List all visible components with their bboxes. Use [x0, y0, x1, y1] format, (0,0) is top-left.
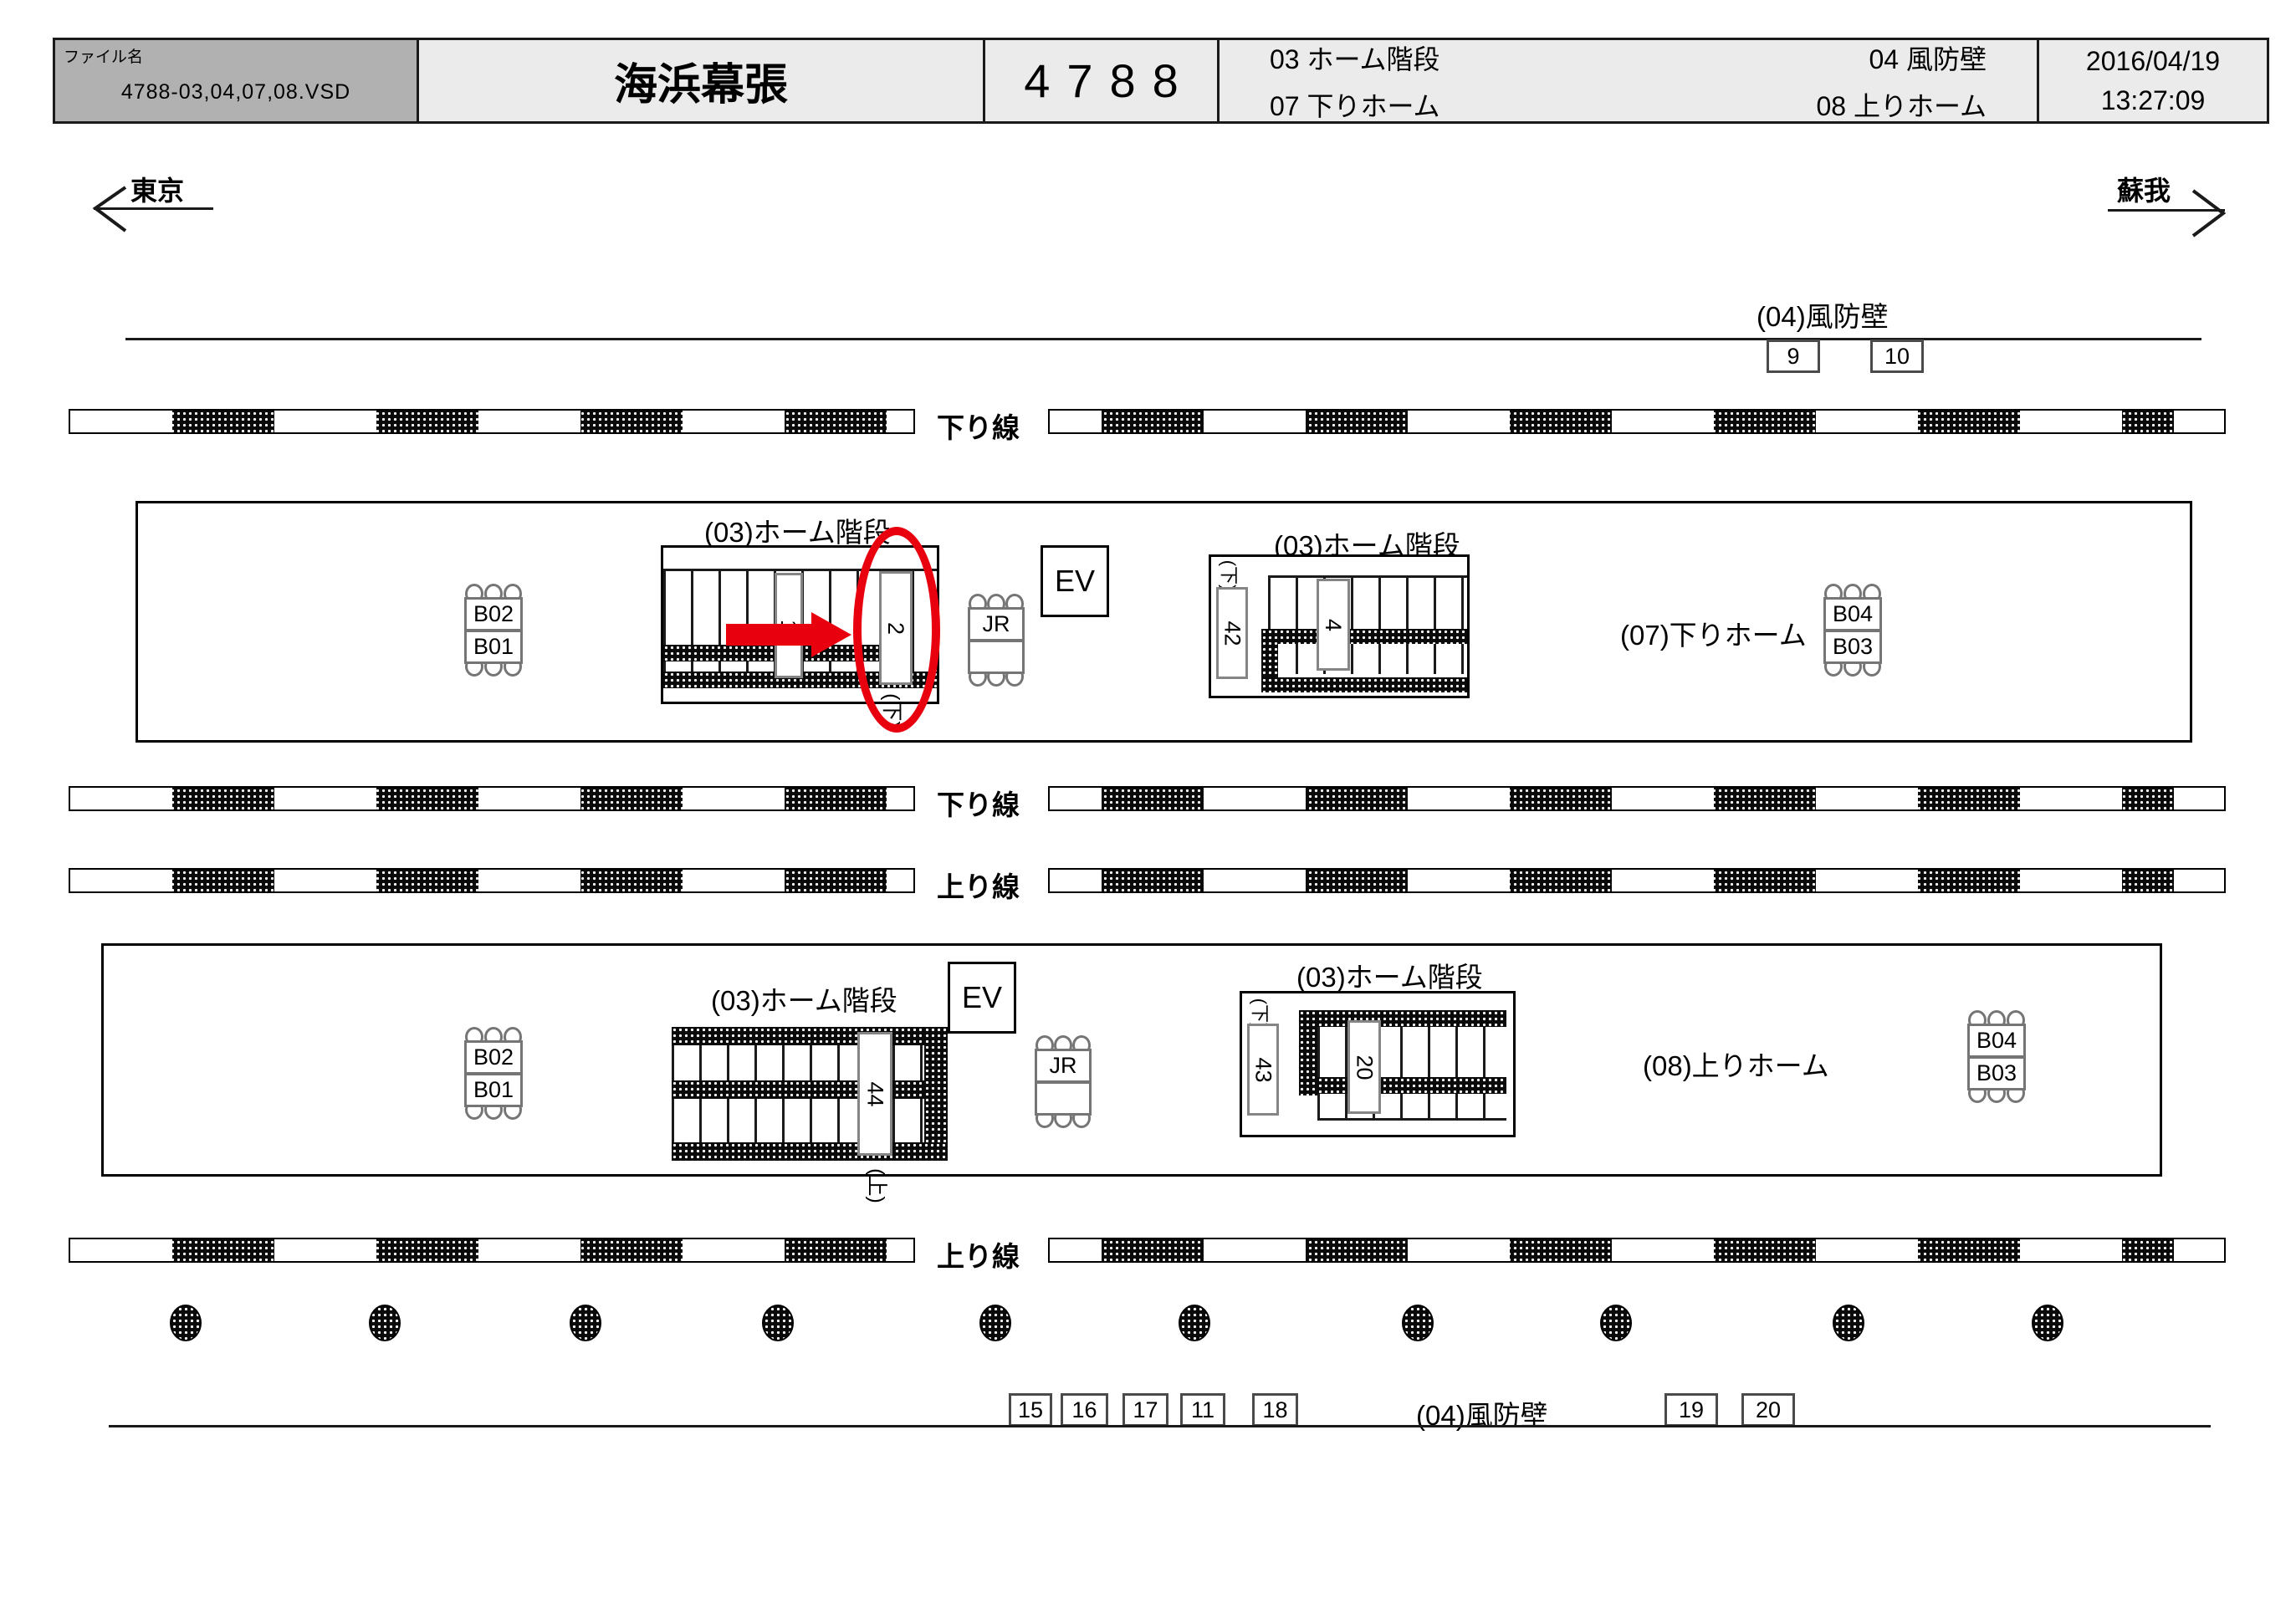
bench-upper-right: B04 B03: [1823, 584, 1882, 677]
pillar: [1833, 1305, 1864, 1341]
stairs3-label: (03)ホーム階段: [711, 978, 897, 1019]
jr-sign-lower: JR: [1035, 1035, 1092, 1129]
bench-lower-left: B02 B01: [464, 1027, 523, 1121]
direction-right-label: 蘇我: [2117, 170, 2171, 208]
stairs3-tread-strip: [672, 1142, 948, 1161]
stairs2-structure: (下) 42 4: [1209, 554, 1470, 698]
upper-platform-label: (07)下りホーム: [1620, 613, 1807, 653]
category-04: 04 風防壁: [1869, 38, 1987, 77]
drawing-number: 4788: [1024, 54, 1195, 108]
bench-label-b04: B04: [1970, 1026, 2023, 1055]
category-07: 07 下りホーム: [1270, 85, 1440, 124]
pillar: [1600, 1305, 1632, 1341]
track-bar: [1048, 1238, 2226, 1263]
pillar: [570, 1305, 601, 1341]
stairs3-structure: 44: [672, 1027, 948, 1161]
file-name-cell: ファイル名 4788-03,04,07,08.VSD: [55, 40, 419, 121]
windbreak-box-18: 18: [1252, 1393, 1298, 1427]
windbreak-box-19: 19: [1664, 1393, 1718, 1427]
red-highlight-ellipse: [853, 527, 940, 733]
stairs2-inner: 4: [1261, 575, 1467, 694]
bench-label-b03: B03: [1970, 1055, 2023, 1088]
windbreak-box-11: 11: [1180, 1393, 1225, 1427]
windbreak-bottom-line: [109, 1425, 2211, 1427]
stairs1-label: (03)ホーム階段: [704, 510, 891, 550]
track-bar: [69, 868, 915, 893]
stairs4-tread-strip: [1317, 1010, 1506, 1027]
windbreak-box-10: 10: [1870, 340, 1924, 373]
jr-sign-upper: JR: [968, 594, 1025, 687]
direction-left-arrow-icon: [84, 182, 134, 236]
pillar: [369, 1305, 401, 1341]
sign-44: 44: [857, 1032, 892, 1156]
jr-label: JR: [970, 610, 1022, 639]
datetime-cell: 2016/04/19 13:27:09: [2039, 40, 2267, 121]
track-bar: [1048, 409, 2226, 434]
sign-4: 4: [1317, 579, 1350, 671]
time-value: 13:27:09: [2101, 85, 2206, 116]
sign-43: 43: [1247, 1024, 1279, 1116]
jr-empty-cell: [970, 639, 1022, 672]
bench-upper-left: B02 B01: [464, 584, 523, 677]
direction-left-label: 東京: [130, 170, 184, 208]
windbreak-box-16: 16: [1061, 1393, 1108, 1427]
stairs3-tread-strip: [924, 1027, 948, 1161]
direction-right-arrow-icon: [2185, 186, 2235, 239]
stairs2-tread-strip: [1261, 677, 1467, 692]
track-bar: [69, 409, 915, 434]
file-name-label: ファイル名: [64, 44, 143, 67]
track-label-row4: 上り線: [937, 1234, 1020, 1274]
stairs2-tread-strip: [1261, 629, 1467, 644]
stairs4-inner: 20: [1299, 1010, 1506, 1121]
category-03: 03 ホーム階段: [1270, 38, 1440, 77]
track-bar: [1048, 786, 2226, 811]
track-bar: [69, 1238, 915, 1263]
lower-platform-label: (08)上りホーム: [1643, 1044, 1829, 1084]
red-arrow-shaft: [726, 624, 813, 646]
track-bar: [1048, 868, 2226, 893]
bench-lower-right: B04 B03: [1967, 1010, 2026, 1104]
windbreak-box-20: 20: [1741, 1393, 1795, 1427]
jr-empty-cell: [1037, 1080, 1089, 1113]
jr-label: JR: [1037, 1051, 1089, 1080]
windbreak-top-label: (04)風防壁: [1757, 294, 1889, 335]
station-name: 海浜幕張: [614, 49, 788, 112]
bench-label-b01: B01: [467, 1072, 520, 1105]
windbreak-box-15: 15: [1009, 1393, 1052, 1427]
bench-label-b04: B04: [1826, 600, 1879, 629]
pillar: [2032, 1305, 2063, 1341]
pillar: [979, 1305, 1011, 1341]
header-table: ファイル名 4788-03,04,07,08.VSD 海浜幕張 4788 03 …: [53, 38, 2269, 124]
stairs4-structure: (下) 43 20: [1240, 991, 1516, 1137]
track-label-row3: 上り線: [937, 865, 1020, 905]
pillar: [1402, 1305, 1434, 1341]
station-name-cell: 海浜幕張: [419, 40, 985, 121]
stairs4-tread-strip: [1299, 1010, 1317, 1095]
track-bar: [69, 786, 915, 811]
bench-label-b02: B02: [467, 1043, 520, 1072]
stairs4-label: (03)ホーム階段: [1296, 955, 1483, 995]
elevator-upper: EV: [1041, 545, 1109, 617]
category-08: 08 上りホーム: [1816, 85, 1987, 124]
sign-20: 20: [1347, 1020, 1381, 1114]
station-diagram-canvas: ファイル名 4788-03,04,07,08.VSD 海浜幕張 4788 03 …: [0, 0, 2296, 1624]
track-label-row2: 下り線: [937, 783, 1020, 823]
drawing-number-cell: 4788: [985, 40, 1220, 121]
bench-label-b03: B03: [1826, 629, 1879, 661]
red-arrow-head: [811, 612, 851, 657]
sign-42: 42: [1216, 587, 1248, 679]
pillar: [762, 1305, 794, 1341]
date-value: 2016/04/19: [2086, 46, 2220, 77]
elevator-lower: EV: [948, 962, 1016, 1034]
stairs4-tread-strip: [1317, 1077, 1506, 1094]
upper-platform-outline: [136, 501, 2192, 743]
windbreak-box-9: 9: [1767, 340, 1820, 373]
pillar: [170, 1305, 202, 1341]
file-name-value: 4788-03,04,07,08.VSD: [55, 80, 417, 105]
track-label-row1: 下り線: [937, 406, 1020, 446]
pillar: [1179, 1305, 1210, 1341]
lower-platform-outline: [101, 943, 2162, 1177]
bench-label-b01: B01: [467, 629, 520, 661]
bench-label-b02: B02: [467, 600, 520, 629]
sign-44-sub-label: (上): [860, 1166, 897, 1206]
categories-cell: 03 ホーム階段 04 風防壁 07 下りホーム 08 上りホーム: [1220, 40, 2039, 121]
windbreak-box-17: 17: [1122, 1393, 1168, 1427]
